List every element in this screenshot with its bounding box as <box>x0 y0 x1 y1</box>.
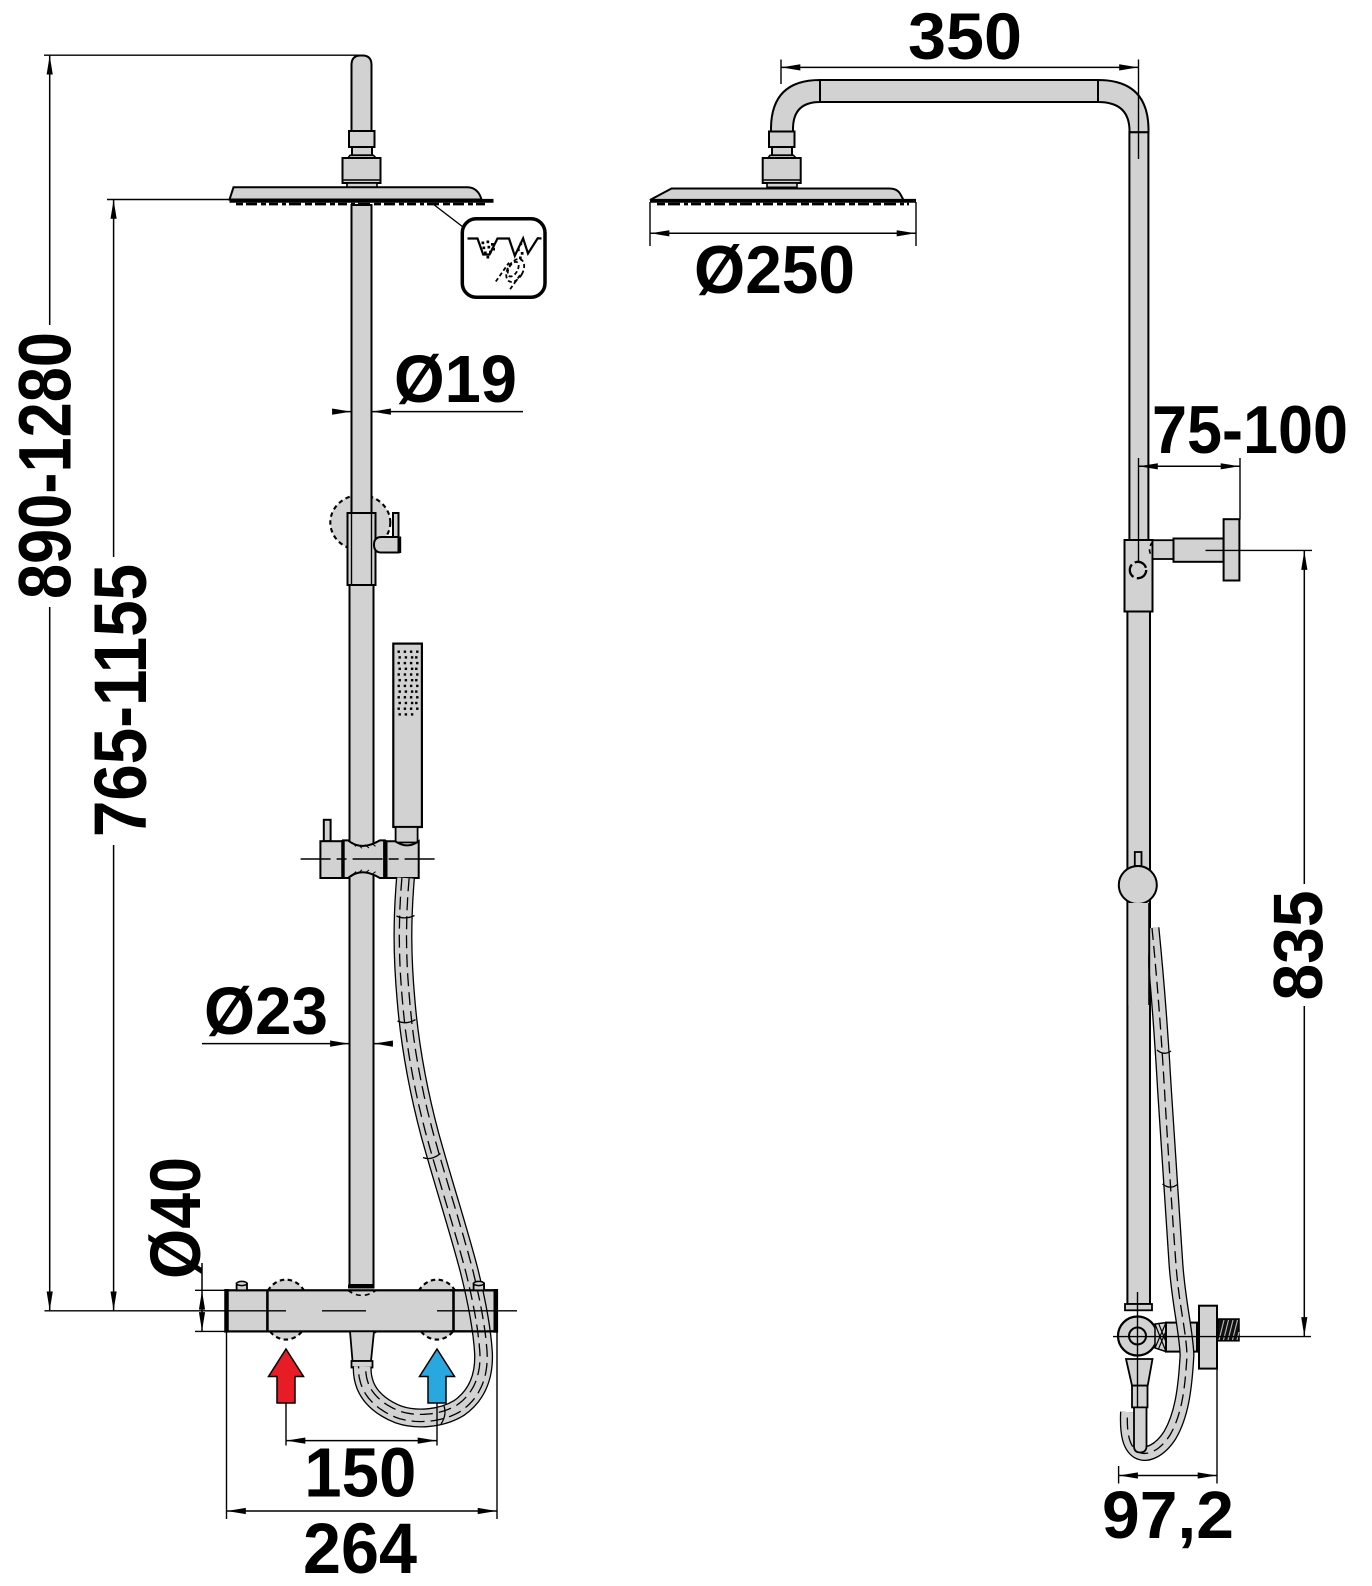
svg-text:264: 264 <box>303 1510 417 1586</box>
svg-text:150: 150 <box>304 1434 416 1512</box>
svg-text:350: 350 <box>908 0 1022 73</box>
svg-text:835: 835 <box>1259 891 1337 1001</box>
svg-text:Ø23: Ø23 <box>204 974 328 1049</box>
svg-text:890-1280: 890-1280 <box>4 332 87 599</box>
svg-text:75-100: 75-100 <box>1152 392 1348 468</box>
svg-text:Ø250: Ø250 <box>694 232 855 308</box>
svg-text:765-1155: 765-1155 <box>79 564 162 837</box>
svg-text:Ø19: Ø19 <box>394 342 517 417</box>
svg-text:Ø40: Ø40 <box>137 1157 216 1279</box>
svg-text:97,2: 97,2 <box>1102 1478 1234 1553</box>
